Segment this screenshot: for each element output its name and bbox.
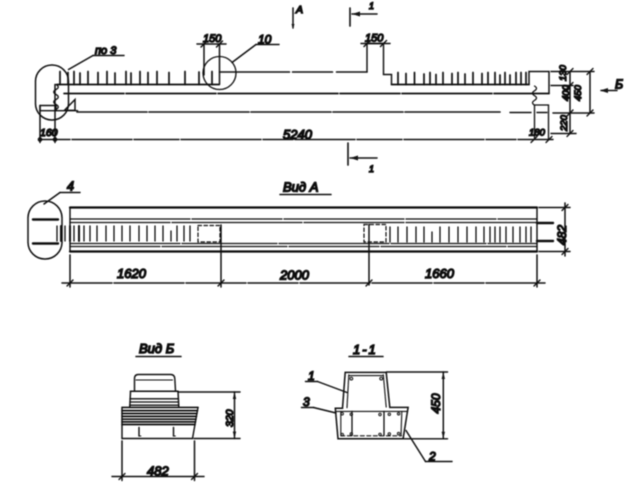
svg-text:400: 400 — [561, 84, 572, 101]
svg-text:A: A — [295, 4, 303, 16]
svg-text:1: 1 — [369, 164, 374, 174]
svg-text:Б: Б — [615, 78, 623, 92]
svg-text:150: 150 — [365, 33, 384, 45]
svg-text:5240: 5240 — [283, 127, 313, 142]
svg-text:482: 482 — [147, 464, 169, 479]
svg-text:130: 130 — [558, 64, 569, 81]
svg-text:1660: 1660 — [425, 266, 455, 281]
svg-text:1: 1 — [369, 1, 374, 11]
svg-text:Вид Б: Вид Б — [139, 341, 175, 356]
svg-text:2000: 2000 — [279, 268, 310, 283]
svg-text:450: 450 — [573, 84, 584, 101]
svg-text:Вид А: Вид А — [283, 180, 318, 195]
svg-text:4: 4 — [67, 180, 74, 194]
svg-text:1-1: 1-1 — [353, 342, 378, 357]
svg-text:450: 450 — [429, 393, 443, 413]
svg-text:1620: 1620 — [117, 266, 147, 281]
svg-text:320: 320 — [224, 409, 236, 427]
svg-text:150: 150 — [203, 33, 222, 45]
svg-text:482: 482 — [555, 225, 569, 245]
svg-text:220: 220 — [559, 114, 570, 132]
svg-text:160: 160 — [40, 127, 58, 139]
